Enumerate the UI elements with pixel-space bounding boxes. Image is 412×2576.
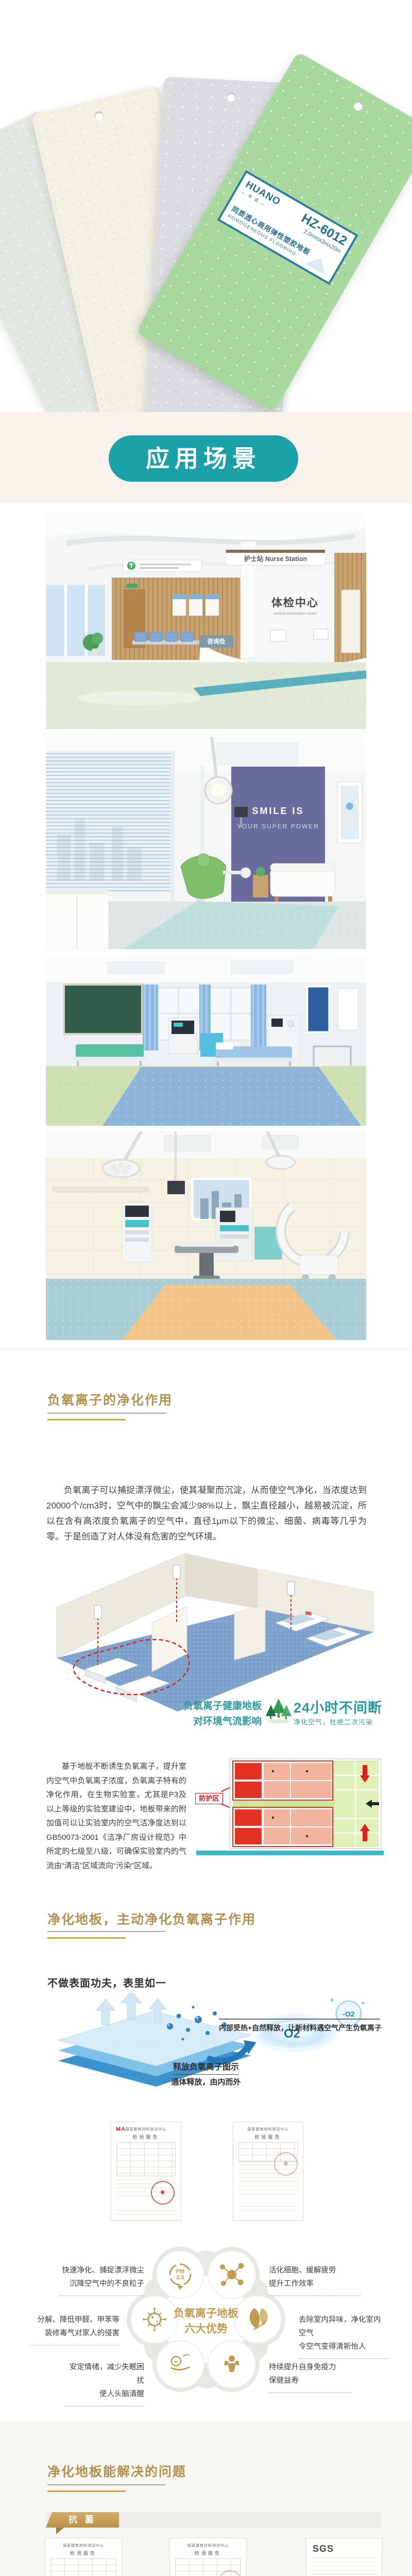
ion-paragraph: 负氧离子可以捕捉漂浮微尘，使其凝聚而沉淀，从而使空气净化，当浓度达到20000个…	[46, 1483, 367, 1545]
center-line2: 六大优势	[161, 2321, 251, 2337]
consult-sign: 咨询处	[207, 637, 226, 645]
photo-operating-room	[46, 1131, 366, 1340]
caption-rule	[219, 2019, 380, 2020]
ma-logo: MA	[116, 2126, 126, 2132]
lab-floor-plan	[229, 1758, 382, 1850]
sample-hole	[352, 99, 365, 112]
title-underline-gray	[47, 1413, 166, 1414]
pine-trees-icon	[266, 1698, 291, 1724]
problems1-title: 净化地板能解决的问题	[47, 2462, 186, 2480]
protection-zone-label: 防护区	[195, 1793, 223, 1804]
advantage-text-sleep: 安定情绪，减少失眠困扰使人头脑清醒	[65, 2361, 144, 2406]
sample-hole	[226, 92, 236, 102]
cert-center-name: 国家建筑材料测试中心	[233, 2127, 303, 2132]
photo-lobby: 护士站 Nurse Station 体检中心 medical examinati…	[46, 513, 366, 729]
certificate-sgs: SGS	[306, 2538, 382, 2576]
lab-paragraph: 基于地板不断诱生负氧离子，提升室内空气中负氧离子浓度，负氧离子特有的净化作用，在…	[46, 1759, 186, 1873]
title-underline-gold	[47, 1937, 126, 1939]
certificate-report-1: MA 国家建筑材料测试中心 检验报告 ★	[111, 2122, 181, 2221]
nurse-station-sign: 护士站 Nurse Station	[244, 555, 307, 563]
title-underline-gray	[47, 2484, 166, 2485]
banner-antibacterial: 抗 菌	[46, 2512, 381, 2528]
title-underline-gray	[47, 1931, 166, 1932]
active-slogan: 不做表面功夫，表里如一	[47, 1975, 166, 1990]
certificate-antibacterial-2: 国家建筑材料测试中心 检测报告 ★	[169, 2538, 247, 2576]
hero-samples: HUANO — 华 诺 — HZ-6012 2.0mmx2mx20m 同质透心商…	[0, 0, 412, 412]
section-divider	[0, 1349, 412, 1350]
certificate-report-2: 国家建筑材料测试中心 检验报告 ★	[233, 2122, 303, 2221]
cert-title: 检验报告	[111, 2133, 181, 2140]
photo-ward	[46, 956, 366, 1126]
advantage-text-fresh-air: 去除室内异味，净化室内空气令空气变得清新怡人	[299, 2313, 387, 2359]
product-detail-page: HUANO — 华 诺 — HZ-6012 2.0mmx2mx20m 同质透心商…	[0, 0, 412, 2576]
apply-scenes-button: 应用场景	[109, 435, 298, 482]
title-underline-gold	[47, 1419, 126, 1420]
banner-tab: 抗 菌	[46, 2512, 119, 2528]
exam-center-sub: medical examination center	[273, 612, 317, 616]
cert-title: 检验报告	[233, 2133, 303, 2140]
mountain-logo-icon	[305, 252, 331, 275]
airflow-caption-line2: 对环境气流影响	[154, 1714, 262, 1727]
advantage-text-immunity: 持续提升自身免疫力保健益寿	[269, 2361, 351, 2393]
dental-wall-line2: YOUR SUPER POWER	[237, 823, 319, 830]
title-underline-gold	[47, 2490, 126, 2492]
advantage-text-formaldehyde: 分解、降低甲醛、甲苯等装修毒气对家人的侵害	[30, 2313, 119, 2346]
photo-dental: SMILE IS YOUR SUPER POWER	[46, 737, 366, 949]
sample-label: HUANO — 华 诺 — HZ-6012 2.0mmx2mx20m 同质透心商…	[217, 170, 358, 285]
dental-wall-line1: SMILE IS	[252, 806, 304, 816]
badge-24h-title: 24小时不间断	[294, 1697, 382, 1717]
plan-teal-bar	[196, 1851, 384, 1855]
diagram-title: 释放负氧离子图示	[173, 2060, 239, 2075]
exam-center-sign: 体检中心	[271, 597, 319, 609]
svg-text:PM: PM	[176, 2268, 185, 2275]
diagram-sub: 通体释放，由内而外	[129, 2076, 283, 2087]
active-section-title: 净化地板，主动净化负氧离子作用	[47, 1909, 256, 1928]
advantage-text-pm25: 快速净化、捕捉漂浮微尘沉降空气中的不良粒子	[60, 2264, 144, 2296]
certificate-antibacterial-1: 国家建筑材料测试中心 检测报告 ★	[45, 2538, 122, 2576]
badge-24h-sub: 净化空气，杜绝二次污染	[294, 1717, 373, 1726]
ion-section-title: 负氧离子的净化作用	[47, 1390, 173, 1409]
banner-tail	[56, 2528, 64, 2534]
center-line1: 负氧离子地板	[161, 2306, 251, 2321]
advantages-center-text: 负氧离子地板 六大优势	[161, 2306, 251, 2337]
sgs-logo: SGS	[313, 2544, 382, 2554]
o2-negative-label: -O2	[342, 2010, 355, 2018]
diagram-title-wrap: 释放负氧离子图示	[129, 2060, 283, 2075]
sample-hole	[93, 111, 105, 122]
advantage-text-cell: 活化细胞、缓解疲劳提升工作效率	[269, 2264, 360, 2296]
release-caption: 内部受热+自然释放，让新材料遇空气产生负氧离子	[219, 2023, 384, 2033]
svg-text:2.5: 2.5	[176, 2275, 184, 2281]
airflow-caption-line1: 负氧离子健康地板	[154, 1698, 262, 1712]
isometric-airflow-diagram	[49, 1546, 381, 1716]
